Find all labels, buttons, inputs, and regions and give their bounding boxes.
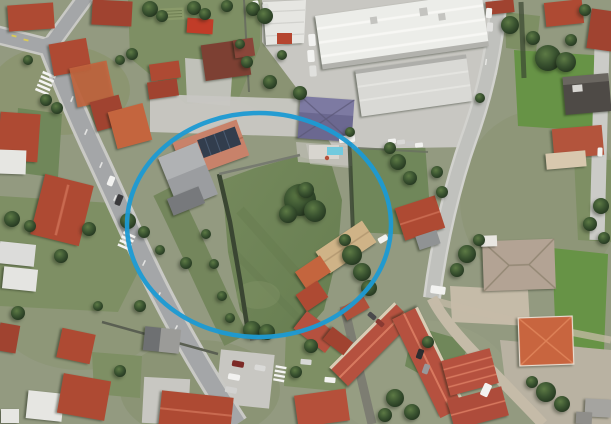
- warehouse-red-shed: [277, 33, 292, 44]
- swimming-pool: [327, 147, 343, 155]
- dark-roof-house: [562, 73, 611, 115]
- salmon-hip-roof-house: [518, 316, 574, 366]
- large-tan-house: [482, 239, 556, 291]
- aerial-photo: [0, 0, 611, 424]
- satellite-map-view: [0, 0, 611, 424]
- house-roof: [7, 2, 55, 31]
- red-shed: [187, 18, 214, 35]
- parked-truck: [308, 34, 316, 46]
